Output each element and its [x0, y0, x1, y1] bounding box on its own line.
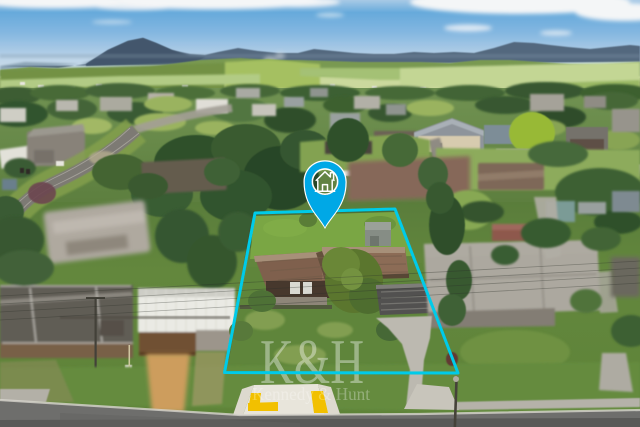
svg-text:Kennedy & Hunt: Kennedy & Hunt: [252, 384, 370, 404]
